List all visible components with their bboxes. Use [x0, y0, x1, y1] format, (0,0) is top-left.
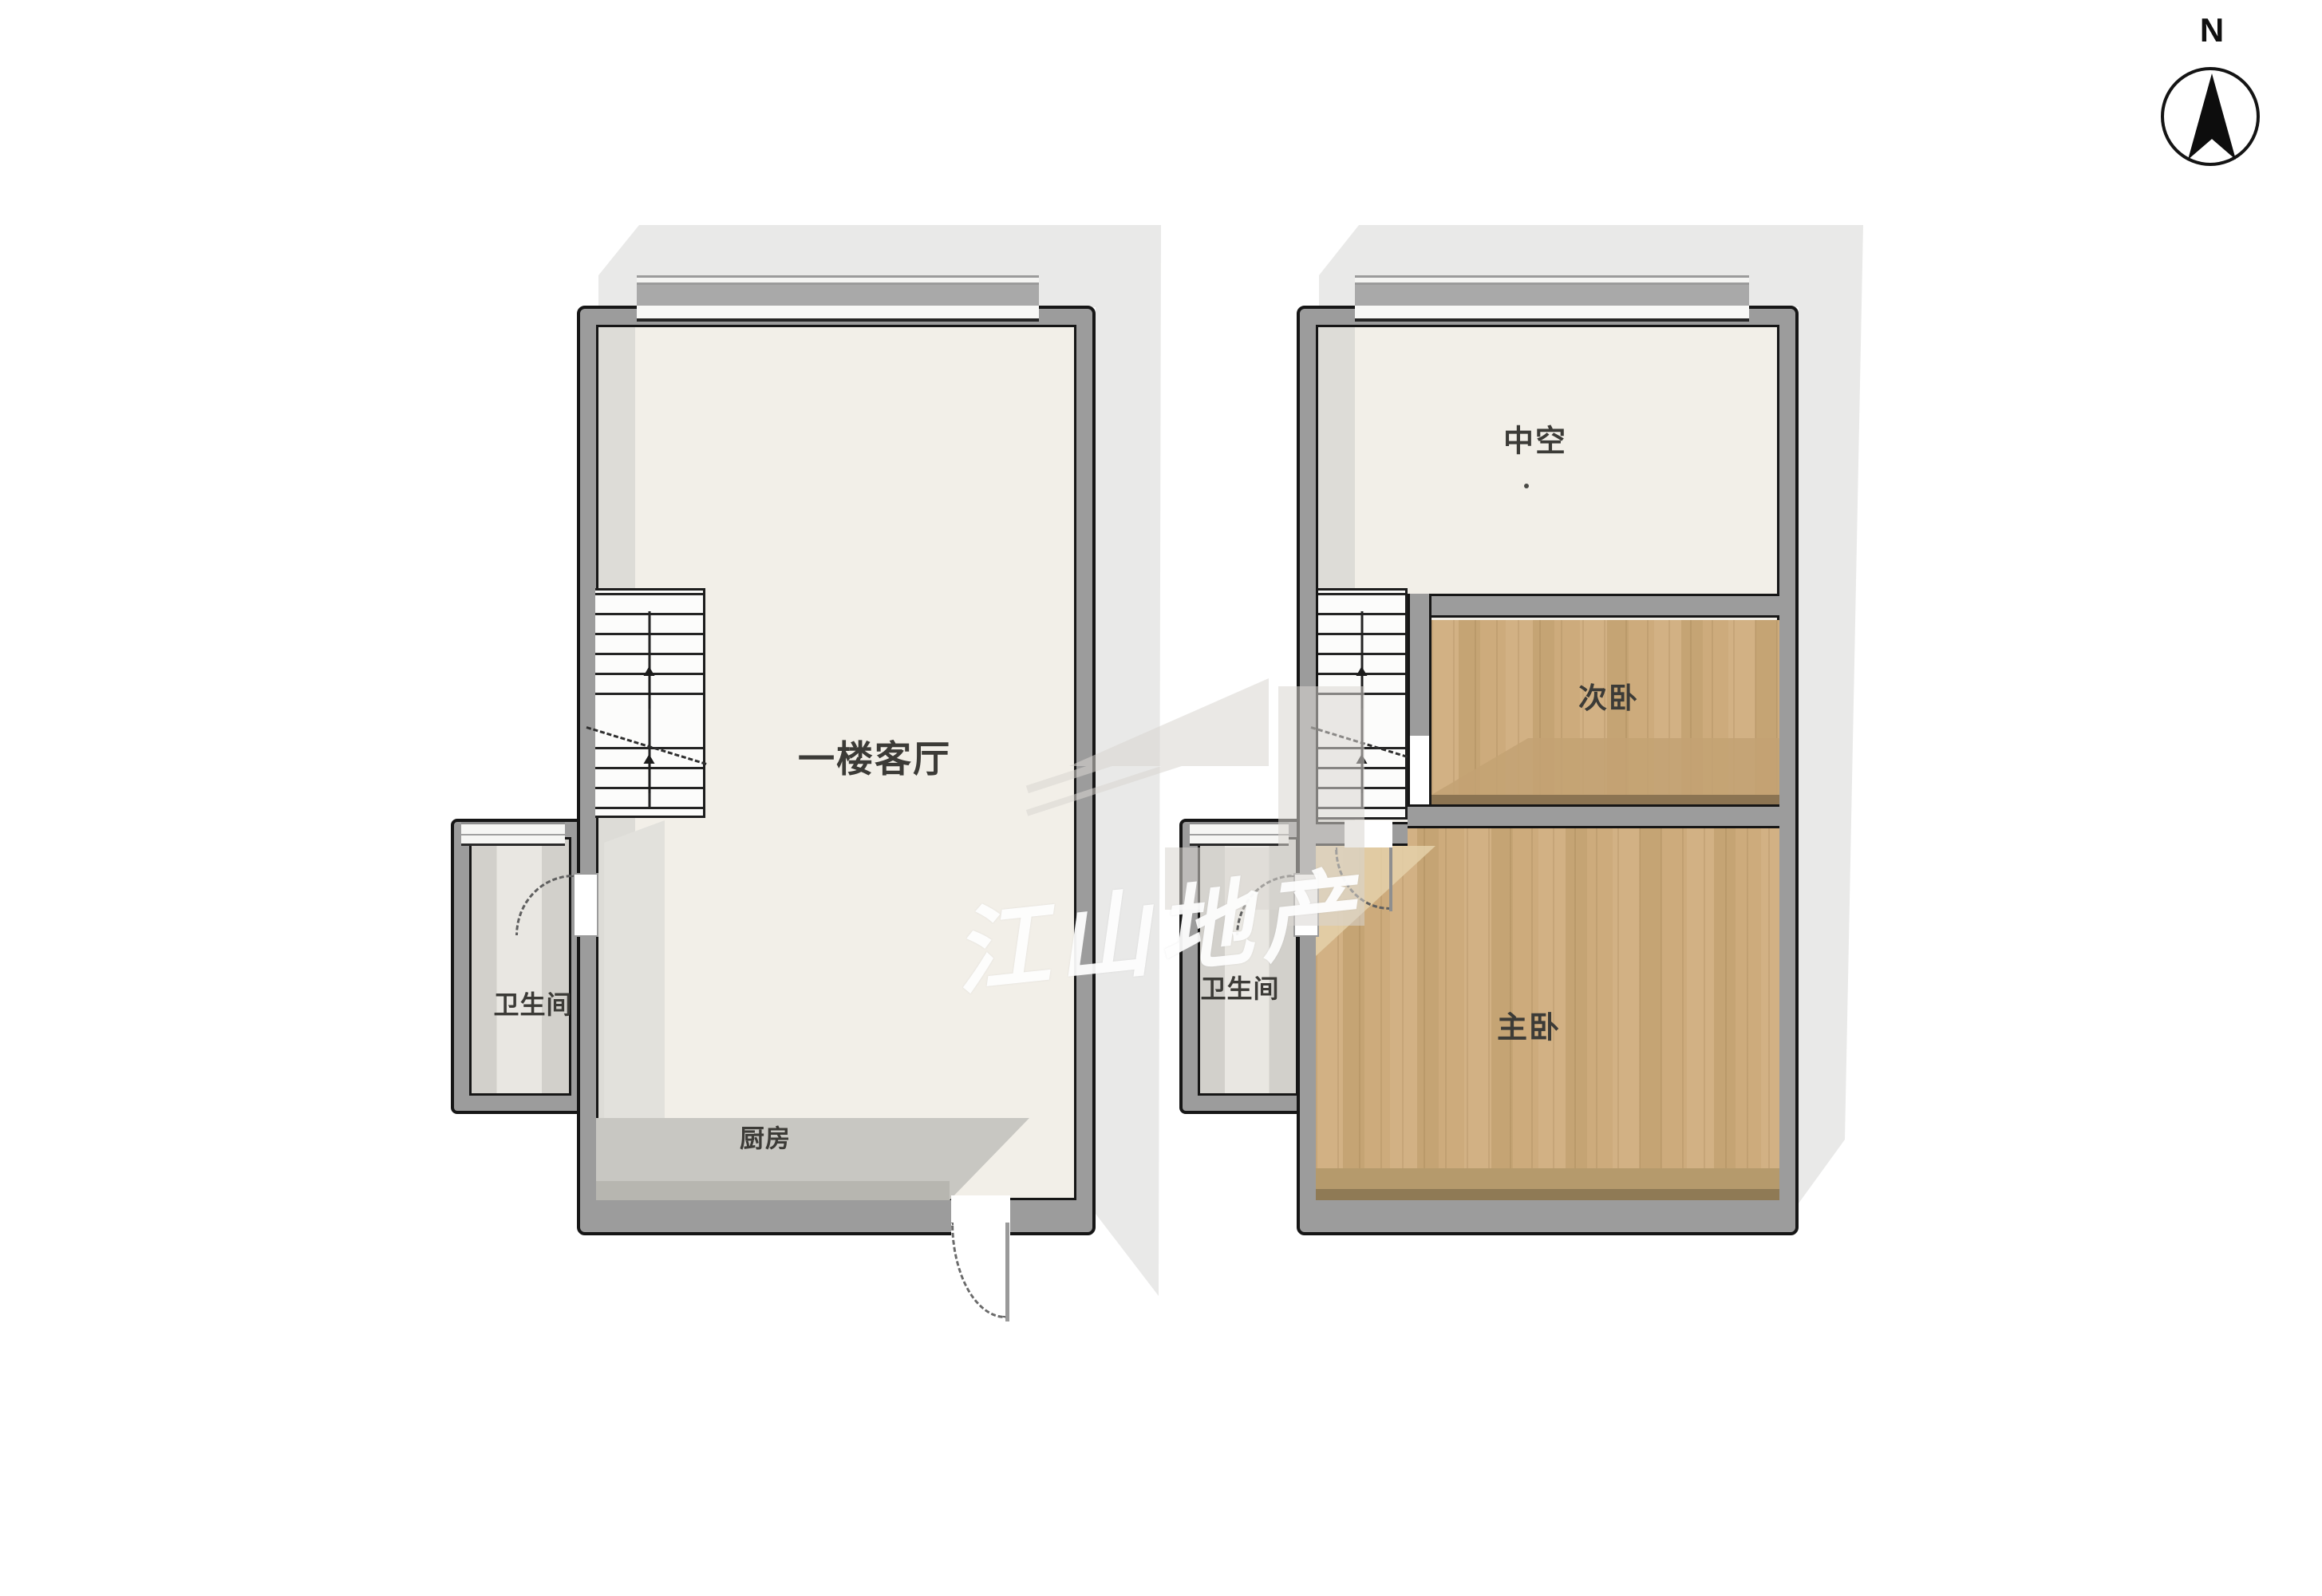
floor2-secondary-bedroom-label: 次卧 — [1578, 675, 1639, 717]
floorplan-canvas: 一楼客厅 卫生间 厨房 — [0, 0, 2322, 1596]
floor1-top-window — [637, 275, 1039, 322]
floor1-floor-shading — [604, 820, 665, 1156]
bed-shadow — [1316, 1168, 1779, 1189]
floor2-void-divider-wall — [1408, 594, 1779, 618]
floor2-master-bedroom-label: 主卧 — [1497, 1003, 1561, 1047]
floor1-bathroom-floor — [469, 837, 571, 1096]
floor1-stairs-icon — [595, 588, 705, 818]
floor1-entry-door-arc — [951, 1223, 1005, 1318]
floor2-secondary-bedroom-door — [1410, 736, 1429, 804]
floor2-bedroom-divider-wall — [1408, 804, 1779, 828]
floor1-kitchen-label: 厨房 — [740, 1119, 791, 1155]
void-dot — [1524, 484, 1529, 488]
stairs-up-arrow-icon — [648, 675, 650, 709]
compass-north-label: N — [2200, 11, 2224, 49]
bed-edge-dark — [1432, 795, 1779, 804]
floor1-kitchen-counter — [596, 1181, 950, 1200]
floor1-living-room-label: 一楼客厅 — [798, 730, 951, 783]
floor1-bathroom-door — [573, 873, 598, 937]
floor2-top-window — [1355, 275, 1749, 322]
floor1-entry-door-leaf — [1005, 1223, 1009, 1321]
stairs-up-arrow-icon — [648, 763, 650, 793]
bed-edge-dark — [1316, 1189, 1779, 1200]
floor1-bathroom-window — [461, 822, 565, 846]
floor1-bathroom-label: 卫生间 — [493, 985, 572, 1021]
floor2-void-label: 中空 — [1503, 417, 1567, 460]
